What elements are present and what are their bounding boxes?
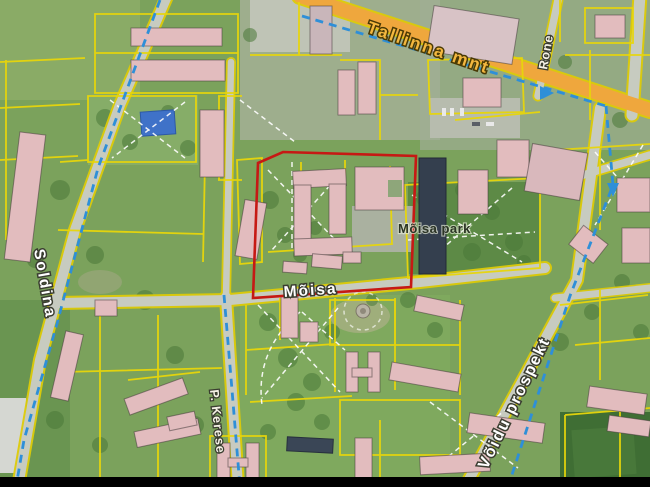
bottom-frame-bar: [0, 477, 650, 487]
map-svg: Tallinna mnt Rone Soldina P. Kerese Mõis…: [0, 0, 650, 487]
place-label-moisa-park: Mõisa park: [398, 221, 471, 236]
map-canvas[interactable]: Tallinna mnt Rone Soldina P. Kerese Mõis…: [0, 0, 650, 487]
dark-highrise: [419, 158, 446, 274]
